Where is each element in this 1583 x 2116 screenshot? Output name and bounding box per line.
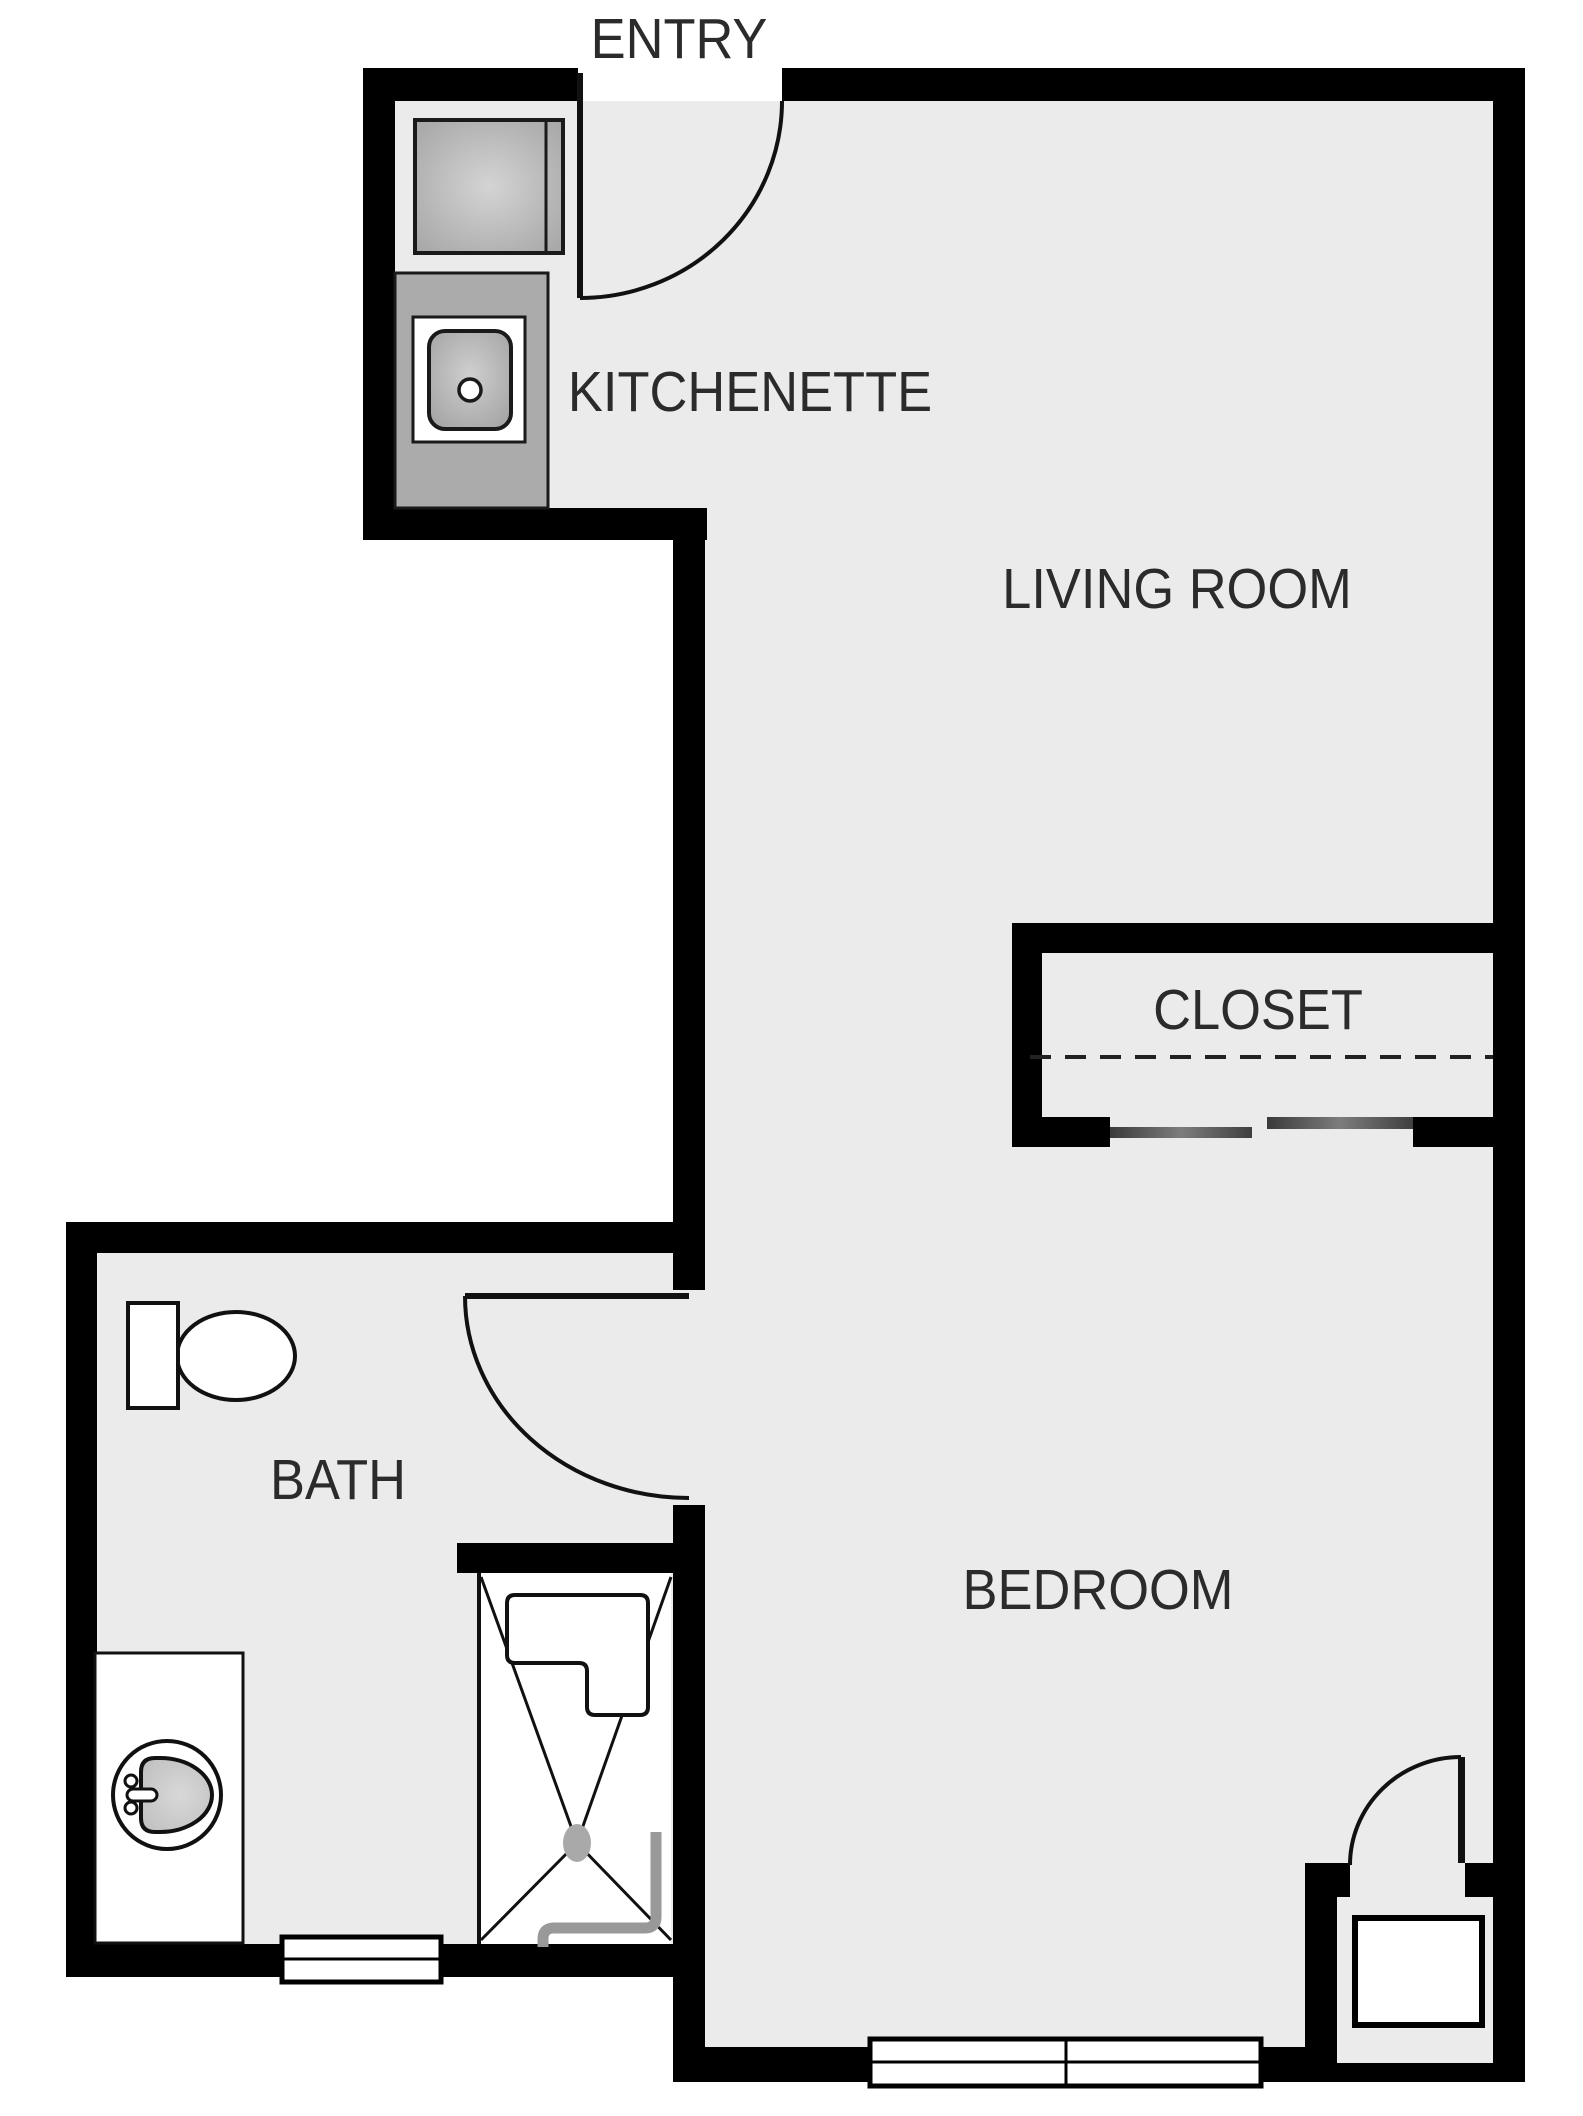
refrigerator-icon bbox=[415, 120, 563, 253]
toilet-bowl bbox=[177, 1312, 295, 1400]
bedroom-door-leaf bbox=[1458, 1757, 1465, 1863]
label-kitchenette: KITCHENETTE bbox=[568, 359, 932, 425]
faucet-icon bbox=[127, 1789, 157, 1801]
bedroom-window-icon bbox=[870, 2039, 1261, 2086]
alcove-left-jamb bbox=[1305, 1863, 1350, 1897]
bath-bottom-wall-left bbox=[66, 1944, 282, 1977]
right-wall bbox=[1493, 68, 1525, 2082]
bath-left-wall bbox=[66, 1253, 97, 1977]
bath-top-wall bbox=[66, 1222, 705, 1253]
kitchenette-fixtures bbox=[395, 120, 563, 508]
toilet-icon bbox=[128, 1303, 295, 1408]
label-bedroom: BEDROOM bbox=[963, 1557, 1234, 1623]
label-bath: BATH bbox=[270, 1447, 406, 1513]
bath-window-icon bbox=[282, 1937, 441, 1982]
closet-left-jamb bbox=[1042, 1117, 1110, 1147]
bedroom-bottom-wall-right bbox=[1261, 2047, 1305, 2082]
closet-top-wall bbox=[1012, 923, 1525, 953]
closet-left-wall bbox=[1012, 953, 1042, 1147]
faucet-handle-top bbox=[125, 1775, 137, 1787]
top-wall-right bbox=[782, 68, 1525, 101]
kitchenette-left-wall bbox=[363, 101, 395, 540]
shower-left-edge bbox=[477, 1573, 481, 1944]
bedroom-bottom-wall-left bbox=[673, 2047, 870, 2082]
floor-plan-drawing bbox=[0, 0, 1583, 2116]
alcove-unit-icon bbox=[1355, 1918, 1482, 2025]
bath-bottom-wall-right bbox=[441, 1944, 705, 1977]
bath-door-leaf bbox=[465, 1293, 689, 1299]
shower-drain-icon bbox=[563, 1824, 591, 1862]
closet-sliding-door-right bbox=[1267, 1117, 1413, 1129]
shower bbox=[477, 1573, 671, 1947]
entry-door-leaf bbox=[577, 73, 583, 298]
label-entry: ENTRY bbox=[591, 6, 768, 72]
alcove-right-jamb bbox=[1465, 1863, 1493, 1897]
corridor-wall-upper bbox=[673, 508, 705, 1290]
floor-plan: ENTRY KITCHENETTE LIVING ROOM CLOSET BAT… bbox=[0, 0, 1583, 2116]
alcove-left-wall bbox=[1305, 1897, 1337, 2082]
closet-sliding-door-left bbox=[1110, 1127, 1252, 1138]
kitchen-sink-drain bbox=[459, 379, 481, 401]
top-wall-left bbox=[363, 68, 578, 101]
alcove-bottom-wall bbox=[1337, 2063, 1525, 2082]
closet-right-jamb bbox=[1413, 1117, 1493, 1147]
label-living-room: LIVING ROOM bbox=[1002, 556, 1352, 622]
faucet-handle-bottom bbox=[125, 1802, 137, 1814]
toilet-tank bbox=[128, 1303, 178, 1408]
vanity bbox=[95, 1653, 243, 1943]
shower-top-wall bbox=[457, 1543, 705, 1573]
label-closet: CLOSET bbox=[1153, 977, 1363, 1043]
corridor-wall-lower bbox=[673, 1505, 705, 2082]
kitchenette-bottom-wall bbox=[363, 508, 707, 540]
